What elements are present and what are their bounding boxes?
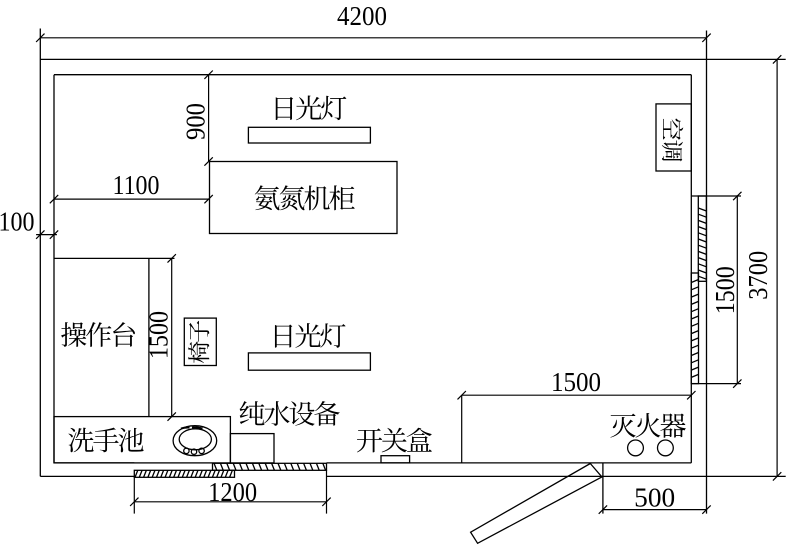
svg-text:1500: 1500	[551, 367, 601, 397]
svg-text:1200: 1200	[208, 477, 257, 507]
svg-text:4200: 4200	[337, 1, 387, 31]
svg-text:500: 500	[634, 483, 675, 513]
svg-text:900: 900	[181, 103, 211, 140]
svg-text:1500: 1500	[710, 266, 740, 314]
svg-text:3700: 3700	[743, 251, 773, 300]
svg-text:1500: 1500	[143, 311, 173, 359]
svg-text:100: 100	[0, 207, 35, 237]
svg-text:1100: 1100	[113, 170, 160, 200]
